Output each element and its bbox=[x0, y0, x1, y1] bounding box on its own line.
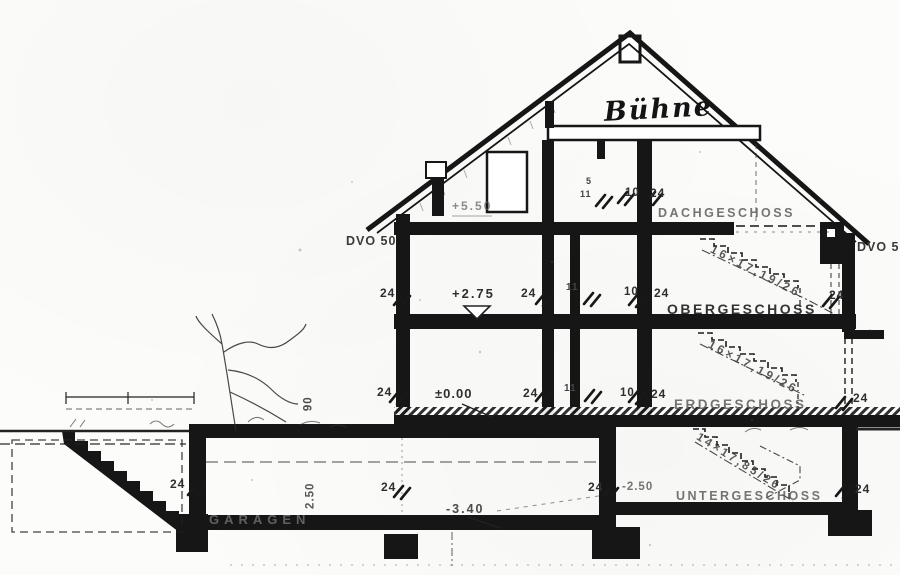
scanned-section-drawing: Bühne DACHGESCHOSS OBERGESCHOSS ERDGESCH… bbox=[0, 0, 900, 575]
eaves-right bbox=[820, 222, 844, 264]
dim-11: 11 bbox=[566, 283, 579, 293]
dim-11: 11 bbox=[580, 190, 592, 199]
roof-vent-post bbox=[432, 178, 444, 216]
dim-10: 10 bbox=[625, 188, 640, 200]
dim-5: 5 bbox=[586, 177, 592, 186]
dim-24: 24 bbox=[654, 287, 669, 299]
slab-dachgeschoss bbox=[394, 222, 734, 235]
dim-24: 24 bbox=[381, 481, 396, 493]
dim-11: 11 bbox=[564, 384, 577, 394]
dim-24: 24 bbox=[523, 387, 538, 399]
gutter-label-right: DVO 50 bbox=[857, 241, 900, 254]
slab-garage-roof bbox=[189, 424, 610, 438]
dim-24: 24 bbox=[380, 287, 395, 299]
dim-10: 10 bbox=[624, 287, 639, 299]
floor-label-obergeschoss: OBERGESCHOSS bbox=[667, 302, 817, 316]
level-label-minus250: -2.50 bbox=[622, 482, 653, 494]
dim-24: 24 bbox=[651, 388, 666, 400]
dim-24: 24 bbox=[829, 289, 844, 301]
dim-24: 24 bbox=[855, 483, 870, 495]
dim-24: 24 bbox=[650, 187, 665, 199]
handwritten-buehne-label: Bühne bbox=[603, 93, 713, 126]
chimney-shaft bbox=[637, 140, 652, 225]
dim-24: 24 bbox=[588, 481, 603, 493]
level-label-plus550: +5.50 bbox=[452, 200, 492, 212]
wall-garage-left bbox=[189, 434, 206, 522]
floor-label-dachgeschoss: DACHGESCHOSS bbox=[658, 207, 795, 220]
dim-90-vertical: 90 bbox=[304, 396, 316, 411]
tree bbox=[196, 314, 306, 431]
slab-balcony-stub bbox=[844, 330, 884, 339]
dim-24: 24 bbox=[853, 392, 868, 404]
floor-label-untergeschoss: UNTERGESCHOSS bbox=[676, 490, 822, 503]
skylight bbox=[487, 152, 527, 212]
level-label-plus275: +2.75 bbox=[452, 287, 495, 300]
wall-interior-1 bbox=[542, 140, 554, 420]
dim-10: 10 bbox=[620, 388, 635, 400]
dim-24: 24 bbox=[521, 287, 536, 299]
gutter-label-left: DVO 50 bbox=[346, 235, 396, 248]
terrace-dimension-line bbox=[66, 392, 194, 404]
dim-24: 24 bbox=[170, 478, 185, 490]
floor-label-garagen: GARAGEN bbox=[209, 513, 310, 526]
dimension-ticks bbox=[188, 192, 852, 499]
floor-label-erdgeschoss: ERDGESCHOSS bbox=[674, 398, 807, 412]
level-label-minus340: -3.40 bbox=[446, 503, 485, 516]
roof-vent bbox=[426, 162, 446, 178]
dim-24: 24 bbox=[377, 386, 392, 398]
slab-basement-floor bbox=[599, 502, 845, 515]
level-label-zero: ±0.00 bbox=[435, 387, 472, 400]
dim-250-vertical: 2.50 bbox=[305, 483, 317, 509]
